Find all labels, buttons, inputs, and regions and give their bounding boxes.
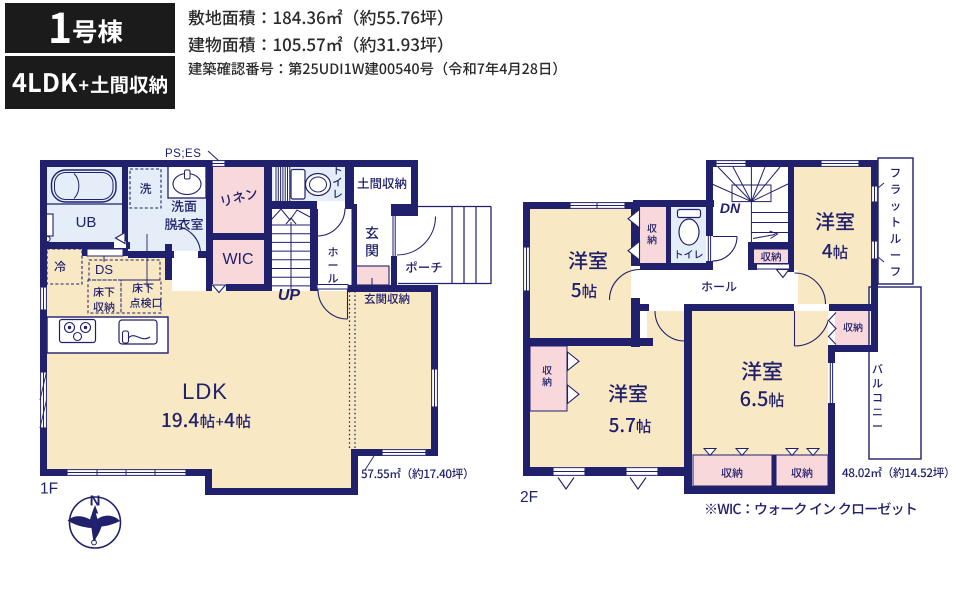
svg-text:UB: UB [76,214,97,231]
svg-text:1F: 1F [40,481,58,498]
svg-text:LDK: LDK [182,379,228,404]
svg-text:UP: UP [278,287,301,304]
svg-text:DN: DN [720,200,741,216]
svg-text:DS: DS [95,262,113,277]
svg-text:PS;ES: PS;ES [165,148,201,160]
svg-text:2F: 2F [520,489,538,506]
svg-text:WIC: WIC [222,251,253,268]
